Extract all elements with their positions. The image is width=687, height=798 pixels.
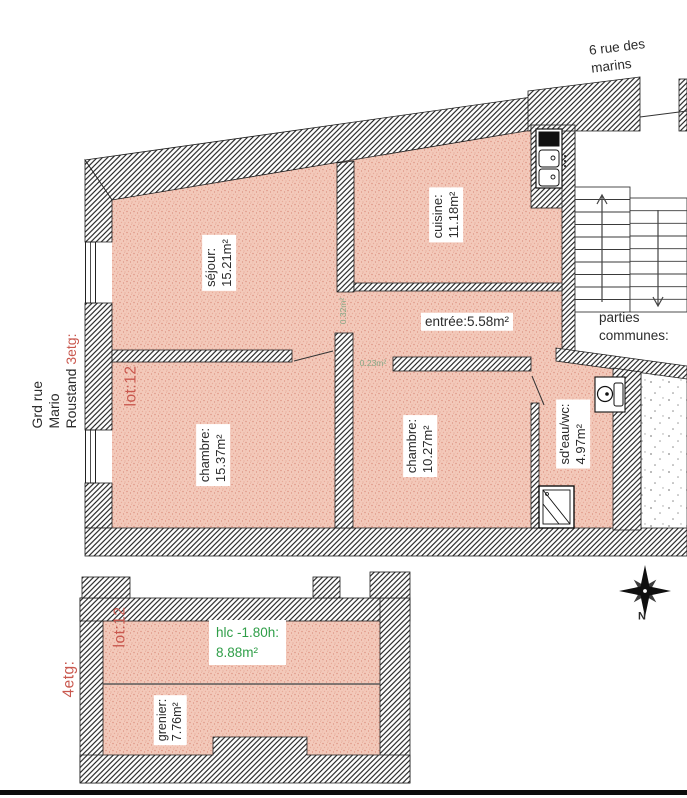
room-label-entree: entrée:5.58m²	[421, 313, 513, 331]
shower-icon	[539, 486, 574, 528]
floorplan-page: 6 rue des marins Grd rue Mario Roustand …	[0, 0, 687, 798]
small-area-label-left: 0.32m²	[338, 298, 348, 324]
common-area-label: parties communes:	[599, 309, 669, 345]
address-line2: Mario	[46, 334, 63, 429]
address-line3: Roustand 3etg:	[62, 334, 79, 429]
floor4-label: 4etg:	[61, 661, 80, 698]
address-line1: Grd rue	[29, 334, 46, 429]
scan-edge-bar	[0, 790, 687, 795]
toilet-icon	[595, 377, 625, 412]
address-label: Grd rue Mario Roustand 3etg:	[29, 334, 79, 429]
room-label-cuisine: cuisine: 11.18m²	[429, 188, 463, 243]
compass-north-label: N	[638, 610, 646, 623]
lot-label-lower: lot:12	[112, 607, 131, 648]
room-label-sejour: séjour: 15.21m²	[202, 235, 236, 291]
room-label-chambre1: chambre: 15.37m²	[196, 424, 230, 486]
room-label-grenier: grenier: 7.76m²	[154, 695, 187, 745]
floor3-label: 3etg:	[62, 334, 78, 365]
room-label-sdeau: sd'eau/wc: 4.97m²	[556, 399, 590, 468]
stairs	[575, 187, 687, 312]
small-area-label-right: 0.23m²	[360, 358, 386, 368]
lot-label-upper: lot:12	[123, 366, 142, 407]
room-label-chambre2: chambre: 10.27m²	[403, 415, 437, 477]
sink-icon	[536, 129, 566, 188]
compass-rose-icon	[619, 565, 671, 617]
courtyard-area	[641, 372, 687, 530]
room-label-hlc: hlc -1.80h: 8.88m²	[209, 620, 286, 665]
